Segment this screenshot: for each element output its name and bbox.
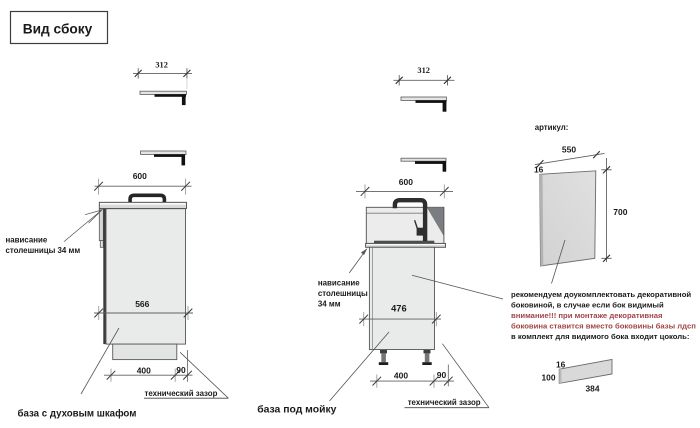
svg-text:боковина ставится вместо боков: боковина ставится вместо боковины базы л… xyxy=(511,321,696,330)
svg-text:384: 384 xyxy=(586,383,600,393)
svg-text:нависание: нависание xyxy=(318,279,360,288)
svg-text:боковиной, в случае если бок в: боковиной, в случае если бок видимый xyxy=(511,300,664,309)
svg-text:нависание: нависание xyxy=(6,236,48,245)
svg-text:100: 100 xyxy=(542,373,556,383)
svg-text:700: 700 xyxy=(613,207,627,217)
svg-text:рекомендуем доукомплектовать д: рекомендуем доукомплектовать декоративно… xyxy=(511,290,691,299)
svg-text:550: 550 xyxy=(562,144,576,154)
svg-text:база под мойку: база под мойку xyxy=(257,404,336,416)
svg-text:в комплект для видимого бока в: в комплект для видимого бока входит цоко… xyxy=(511,332,689,341)
svg-text:столешницы: столешницы xyxy=(318,289,368,298)
svg-text:база с духовым шкафом: база с духовым шкафом xyxy=(18,409,137,420)
svg-text:312: 312 xyxy=(417,66,430,75)
svg-text:16: 16 xyxy=(534,165,544,175)
svg-text:600: 600 xyxy=(133,171,147,181)
svg-text:технический зазор: технический зазор xyxy=(408,398,481,407)
svg-text:476: 476 xyxy=(391,303,407,313)
svg-text:технический зазор: технический зазор xyxy=(145,389,218,398)
svg-text:столешницы 34 мм: столешницы 34 мм xyxy=(6,246,81,255)
svg-text:566: 566 xyxy=(135,299,149,309)
svg-text:312: 312 xyxy=(155,61,168,70)
svg-text:внимание!!! при монтаже декора: внимание!!! при монтаже декоративная xyxy=(511,311,663,320)
svg-text:34 мм: 34 мм xyxy=(318,300,341,309)
svg-text:артикул:: артикул: xyxy=(535,123,569,132)
svg-text:90: 90 xyxy=(437,370,447,380)
svg-text:400: 400 xyxy=(394,370,408,380)
svg-text:600: 600 xyxy=(399,177,413,187)
svg-text:Вид сбоку: Вид сбоку xyxy=(23,22,93,37)
svg-text:90: 90 xyxy=(176,365,186,375)
svg-text:400: 400 xyxy=(137,366,151,376)
